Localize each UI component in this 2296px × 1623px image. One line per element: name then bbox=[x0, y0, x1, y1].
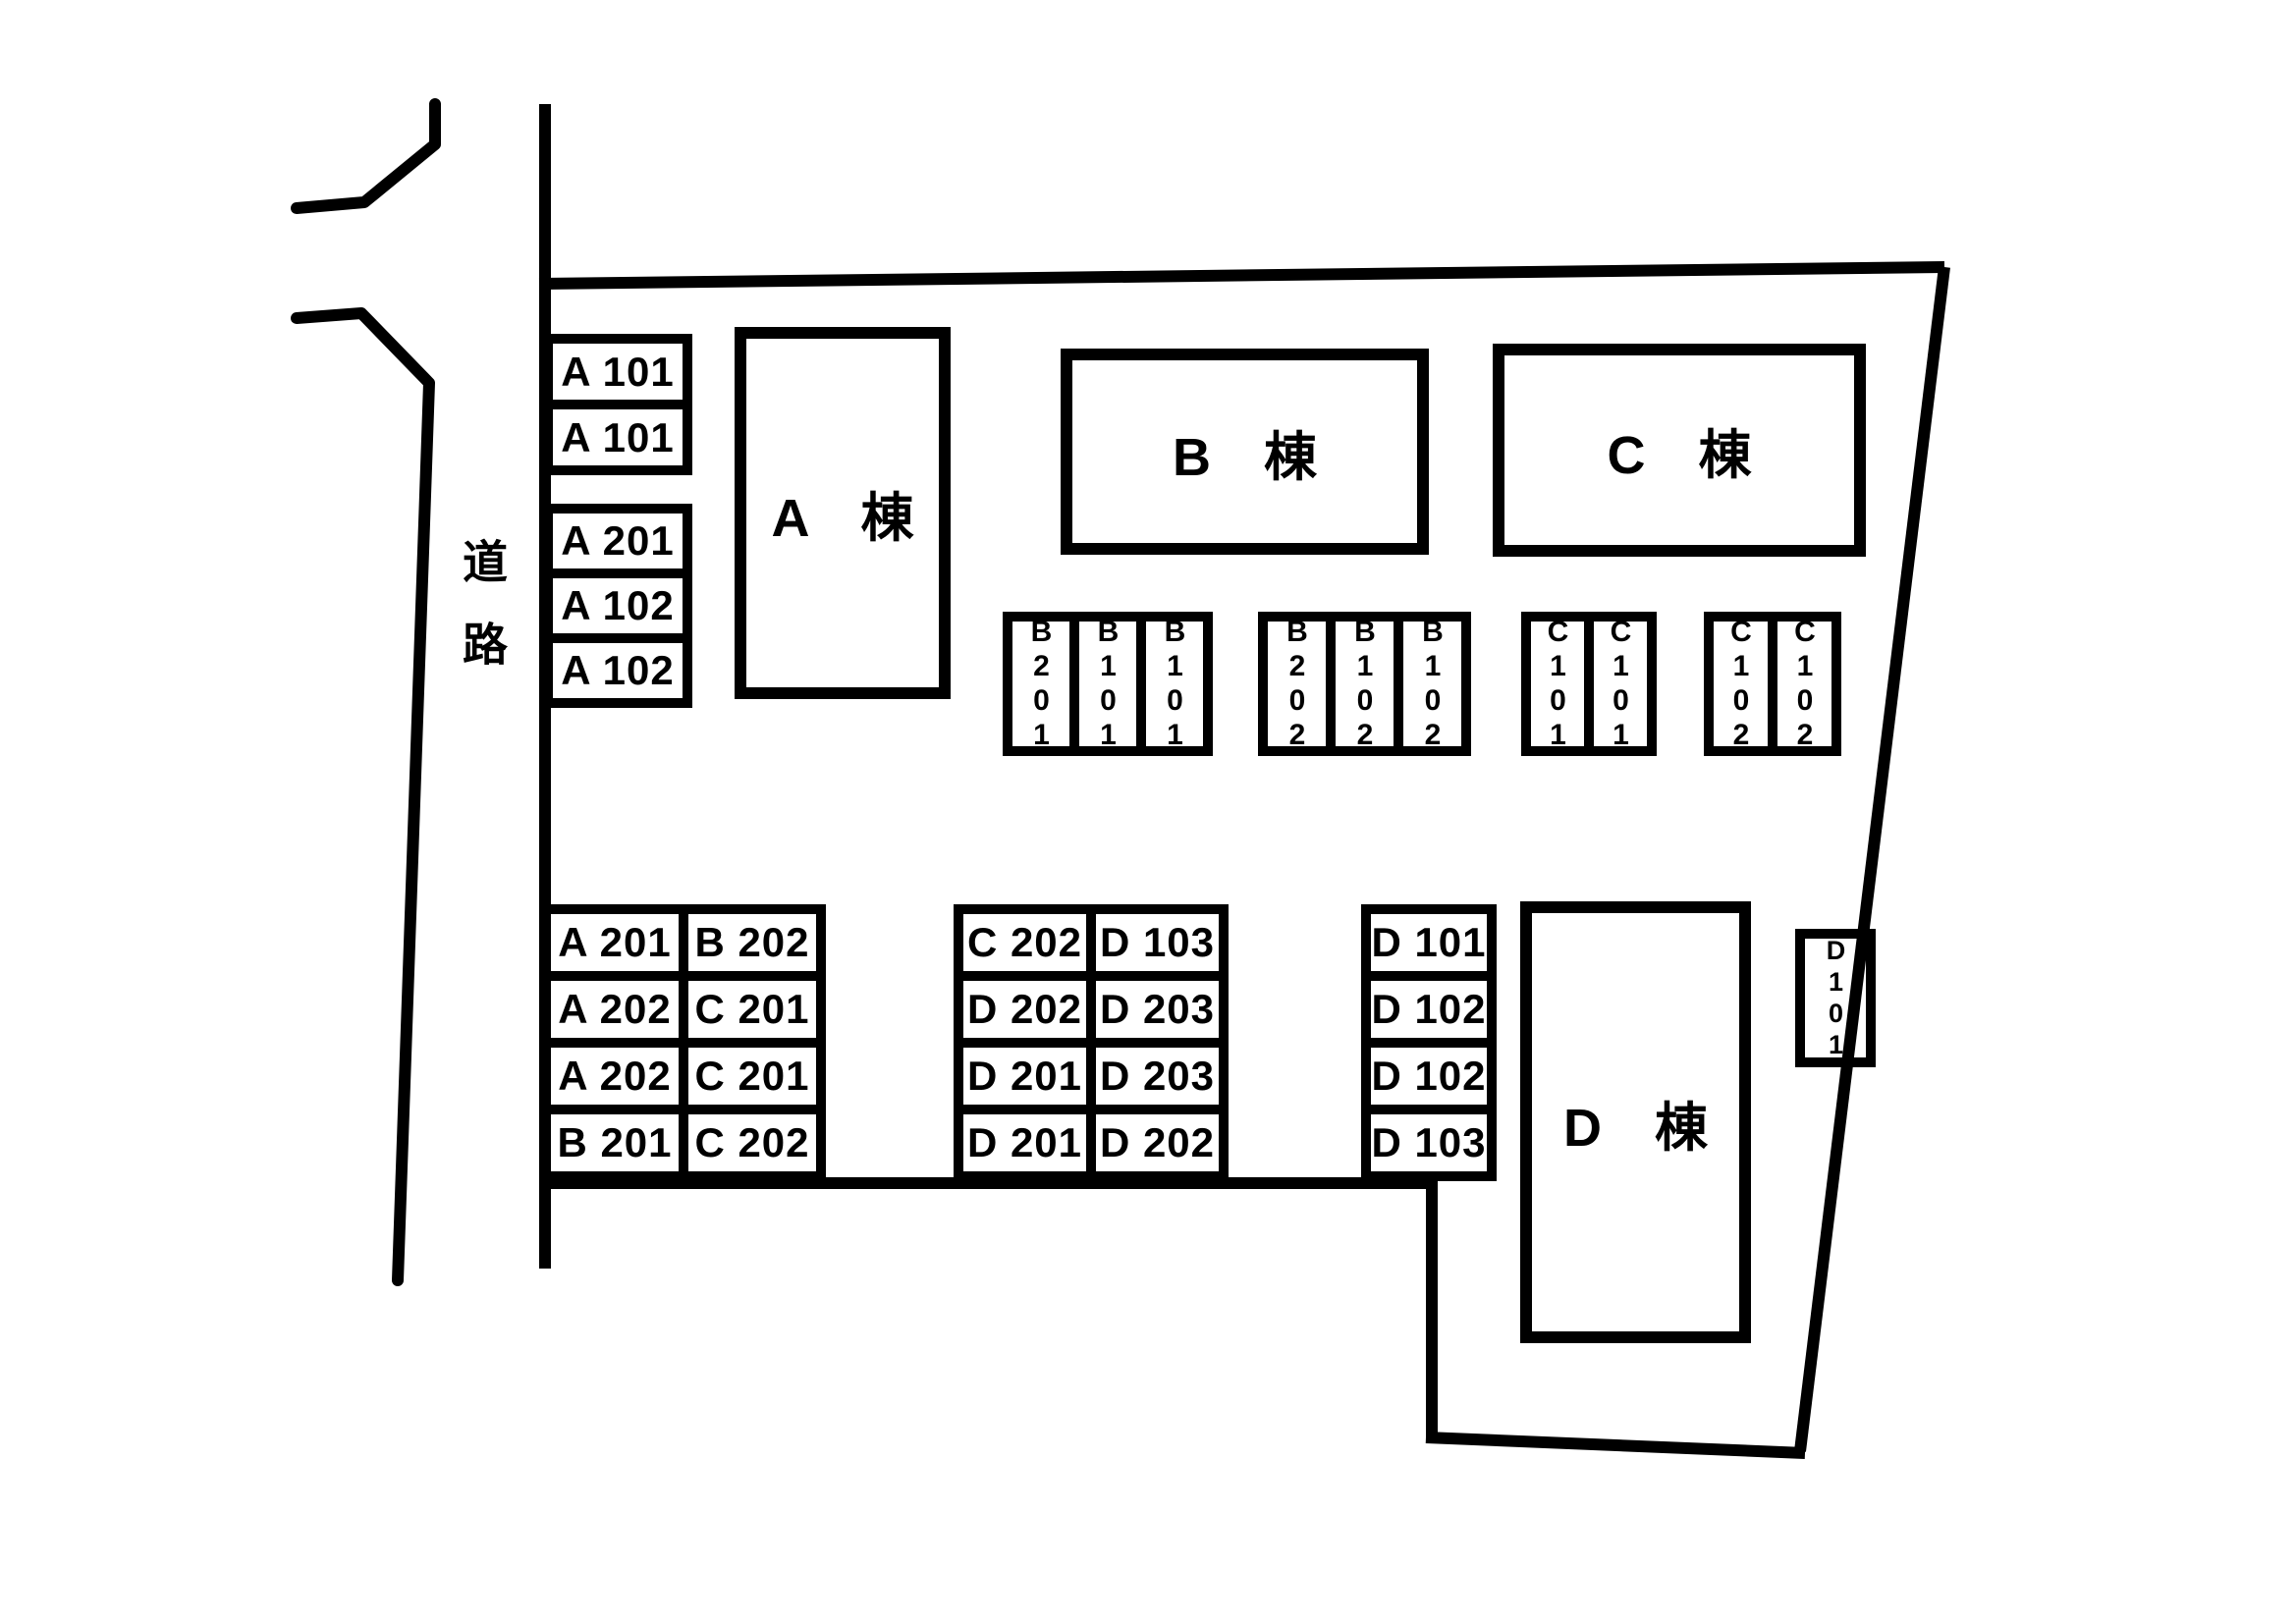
parking-spot: D 101 bbox=[1361, 904, 1497, 981]
parking-group-c1: C101C101 bbox=[1521, 612, 1657, 756]
parking-spot: A 201 bbox=[543, 504, 692, 578]
parking-spot: C 201 bbox=[679, 971, 826, 1048]
parking-spot-label: C101 bbox=[1543, 616, 1572, 753]
parking-spot-label: D 201 bbox=[967, 1053, 1082, 1100]
parking-spot: C101 bbox=[1584, 612, 1657, 756]
parking-spot: A 102 bbox=[543, 568, 692, 643]
parking-spot: A 101 bbox=[543, 334, 692, 409]
parking-spot: B102 bbox=[1326, 612, 1403, 756]
parking-spot-label: C101 bbox=[1606, 616, 1635, 753]
building-d: D 棟 bbox=[1520, 901, 1751, 1343]
parking-spot: D 102 bbox=[1361, 971, 1497, 1048]
parking-spot: C102 bbox=[1704, 612, 1777, 756]
building-a-label: A 棟 bbox=[772, 474, 914, 552]
parking-spot-label: A 101 bbox=[561, 349, 675, 396]
parking-spot-label: D 203 bbox=[1100, 986, 1215, 1033]
parking-spot: B 202 bbox=[679, 904, 826, 981]
parking-spot: A 102 bbox=[543, 633, 692, 708]
parking-group-south-center: C 202D 103D 202D 203D 201D 203D 201D 202 bbox=[954, 904, 1229, 1181]
parking-spot: D 201 bbox=[954, 1105, 1096, 1181]
parking-spot-label: A 201 bbox=[561, 517, 675, 565]
parking-spot-label: D 202 bbox=[967, 986, 1082, 1033]
parking-spot: A 101 bbox=[543, 400, 692, 475]
parking-spot-label: C 201 bbox=[694, 1053, 809, 1100]
parking-spot-label: D 101 bbox=[1371, 919, 1486, 966]
parking-spot-label: A 201 bbox=[558, 919, 672, 966]
parking-spot-label: D 201 bbox=[967, 1119, 1082, 1166]
parking-spot: B 201 bbox=[541, 1105, 688, 1181]
parking-spot-label: A 101 bbox=[561, 414, 675, 461]
parking-spot-label: B102 bbox=[1418, 616, 1448, 753]
parking-group-southwest: A 201B 202A 202C 201A 202C 201B 201C 202 bbox=[541, 904, 826, 1181]
parking-spot-label: B202 bbox=[1283, 616, 1312, 753]
parking-spot-label: B101 bbox=[1160, 616, 1189, 753]
site-outline bbox=[0, 0, 2296, 1623]
parking-spot-label: C 202 bbox=[967, 919, 1082, 966]
parking-spot: D 103 bbox=[1361, 1105, 1497, 1181]
road-label: 道路 bbox=[450, 538, 515, 703]
parking-spot: D 202 bbox=[954, 971, 1096, 1048]
parking-spot: B202 bbox=[1258, 612, 1336, 756]
parking-spot-label: B201 bbox=[1026, 616, 1056, 753]
parking-spot: D101 bbox=[1795, 929, 1876, 1067]
parking-spot: C 202 bbox=[954, 904, 1096, 981]
parking-spot: B201 bbox=[1003, 612, 1079, 756]
parking-spot-label: B102 bbox=[1350, 616, 1380, 753]
parking-spot-label: C 201 bbox=[694, 986, 809, 1033]
building-c-label: C 棟 bbox=[1608, 411, 1752, 489]
road-curb-lower bbox=[297, 313, 429, 1280]
site-plan-canvas: 道路 A 棟 B 棟 C 棟 D 棟 const data = JSON.par… bbox=[0, 0, 2296, 1623]
parking-spot-label: A 202 bbox=[558, 986, 672, 1033]
parking-spot: A 201 bbox=[541, 904, 688, 981]
parking-spot: B101 bbox=[1069, 612, 1146, 756]
parking-spot: A 202 bbox=[541, 971, 688, 1048]
parking-group-c2: C102C102 bbox=[1704, 612, 1841, 756]
parking-spot: B101 bbox=[1136, 612, 1213, 756]
parking-spot-label: C102 bbox=[1790, 616, 1820, 753]
parking-group-east-standalone: D101 bbox=[1795, 929, 1876, 1067]
parking-spot-label: C102 bbox=[1726, 616, 1756, 753]
parking-group-b2: B202B102B102 bbox=[1258, 612, 1471, 756]
parking-spot-label: D 102 bbox=[1371, 1053, 1486, 1100]
parking-spot: D 202 bbox=[1086, 1105, 1229, 1181]
parking-spot-label: D 103 bbox=[1371, 1119, 1486, 1166]
parking-group-roadside-top: A 101A 101 bbox=[543, 334, 692, 475]
parking-spot: D 102 bbox=[1361, 1038, 1497, 1114]
parking-spot-label: B 201 bbox=[557, 1119, 672, 1166]
parking-spot-label: D 202 bbox=[1100, 1119, 1215, 1166]
building-b: B 棟 bbox=[1061, 349, 1429, 555]
building-a: A 棟 bbox=[735, 327, 951, 699]
parking-spot-label: D 102 bbox=[1371, 986, 1486, 1033]
parking-spot-label: D 103 bbox=[1100, 919, 1215, 966]
building-b-label: B 棟 bbox=[1173, 413, 1317, 491]
parking-spot-label: B 202 bbox=[694, 919, 809, 966]
parking-spot-label: D101 bbox=[1823, 936, 1849, 1061]
parking-spot-label: A 102 bbox=[561, 647, 675, 694]
parking-spot: A 202 bbox=[541, 1038, 688, 1114]
parking-spot-label: D 203 bbox=[1100, 1053, 1215, 1100]
parking-spot: D 201 bbox=[954, 1038, 1096, 1114]
parking-group-b1: B201B101B101 bbox=[1003, 612, 1213, 756]
parking-group-roadside-bottom: A 201A 102A 102 bbox=[543, 504, 692, 708]
parking-spot-label: C 202 bbox=[694, 1119, 809, 1166]
boundary-top-line bbox=[539, 267, 1944, 284]
parking-spot: B102 bbox=[1394, 612, 1471, 756]
parking-spot: D 103 bbox=[1086, 904, 1229, 981]
parking-spot: D 203 bbox=[1086, 1038, 1229, 1114]
parking-spot: C102 bbox=[1768, 612, 1841, 756]
parking-spot-label: B101 bbox=[1093, 616, 1122, 753]
parking-spot: C101 bbox=[1521, 612, 1594, 756]
parking-spot: C 202 bbox=[679, 1105, 826, 1181]
building-c: C 棟 bbox=[1493, 344, 1866, 557]
parking-spot: C 201 bbox=[679, 1038, 826, 1114]
boundary-bottom-right-line bbox=[1426, 1437, 1805, 1453]
building-d-label: D 棟 bbox=[1563, 1084, 1708, 1162]
parking-spot-label: A 102 bbox=[561, 582, 675, 629]
road-curb-upper bbox=[297, 104, 435, 208]
parking-spot: D 203 bbox=[1086, 971, 1229, 1048]
parking-group-south-east: D 101D 102D 102D 103 bbox=[1361, 904, 1497, 1181]
parking-spot-label: A 202 bbox=[558, 1053, 672, 1100]
